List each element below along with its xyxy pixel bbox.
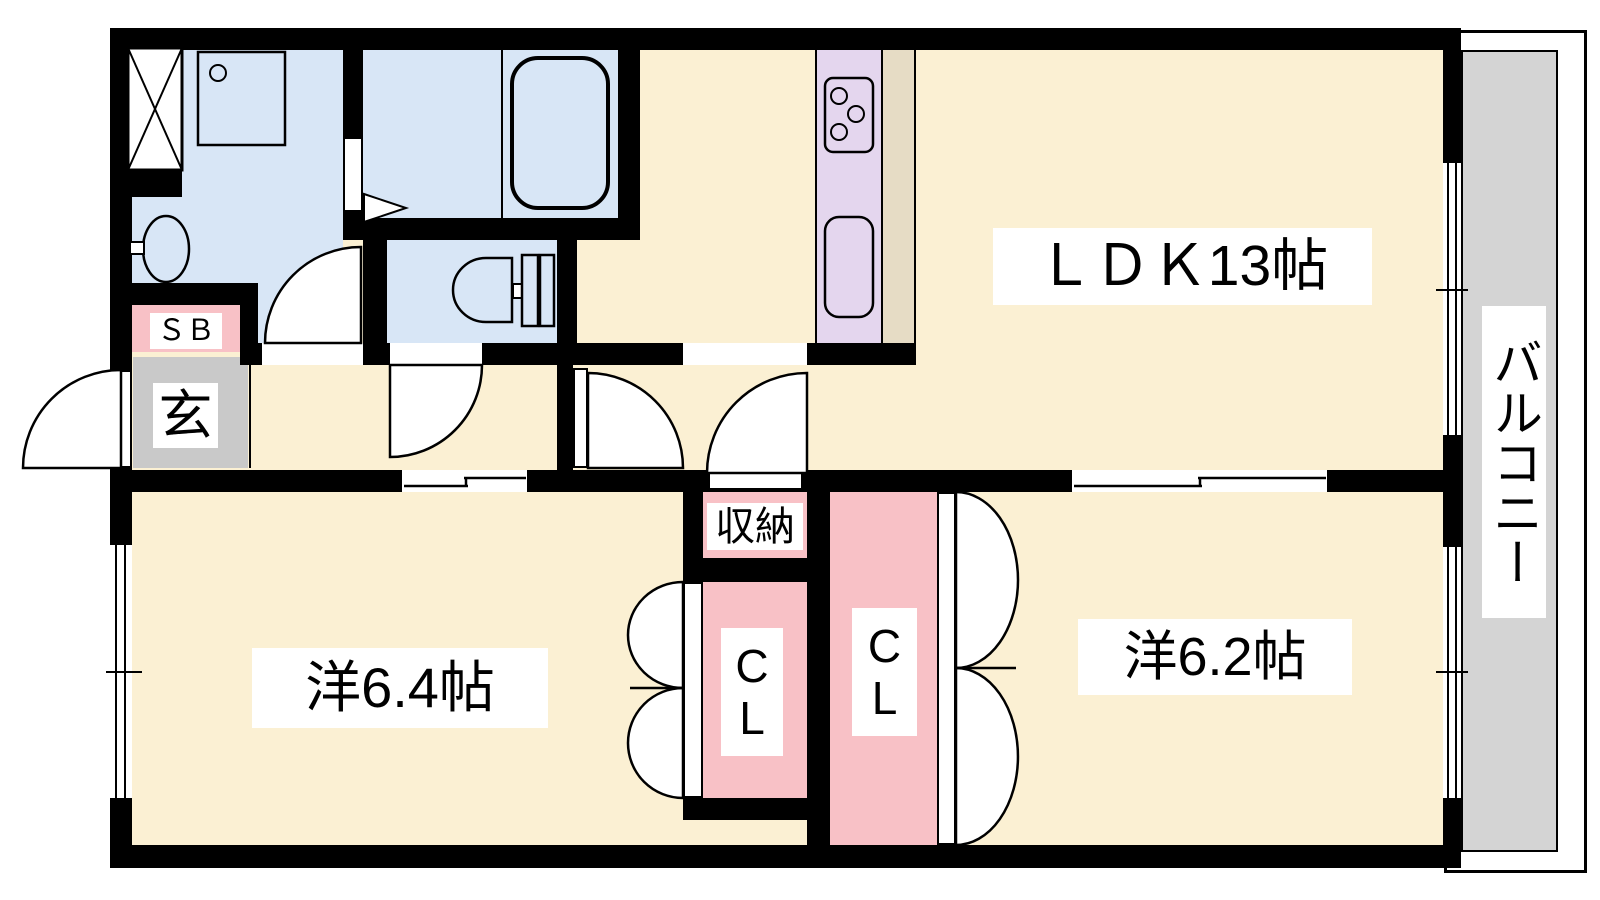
room-label-storage: 収納: [707, 503, 803, 550]
washstand-icon: [198, 52, 285, 145]
closet-left-bifold-icon: [628, 582, 683, 798]
sliding-door-left-icon: [404, 478, 526, 486]
room-label-ldk: ＬＤＫ13帖: [993, 228, 1372, 305]
sliding-door-right-icon: [1074, 478, 1326, 486]
washing-machine-icon: [128, 48, 182, 170]
toilet-door-swing: [390, 365, 482, 457]
window-ldk-glazing: [1436, 163, 1468, 435]
toilet-icon: [453, 255, 554, 326]
room-label-balcony: バルコニー: [1482, 306, 1546, 618]
window-bedroom-right-glazing: [1436, 547, 1468, 798]
room-label-bedroom-left: 洋6.4帖: [252, 648, 548, 728]
bathtub-icon: [502, 48, 608, 218]
room-label-closet-left: CL: [721, 628, 783, 756]
room-label-closet-right: CL: [852, 608, 917, 736]
bath-door-indicator-icon: [364, 194, 406, 222]
kitchen-sink-icon: [825, 217, 873, 317]
gas-stove-icon: [825, 78, 873, 152]
floor-plan: ＬＤＫ13帖 洋6.4帖 洋6.2帖 バルコニー 玄 ＳＢ 収納 CL CL: [0, 0, 1600, 900]
storage-door-swing: [707, 373, 807, 473]
entrance-door-swing: [23, 370, 121, 468]
closet-right-bifold-icon: [956, 492, 1018, 845]
plan-linework: [0, 0, 1600, 900]
window-bedroom-left-glazing: [106, 545, 142, 798]
wash-basin-icon: [130, 216, 189, 282]
room-label-entrance: 玄: [153, 383, 218, 448]
room-label-shoebox: ＳＢ: [150, 313, 222, 349]
room-label-bedroom-right: 洋6.2帖: [1078, 619, 1352, 695]
washroom-door-swing: [265, 247, 361, 343]
ldk-door-swing: [588, 373, 683, 468]
